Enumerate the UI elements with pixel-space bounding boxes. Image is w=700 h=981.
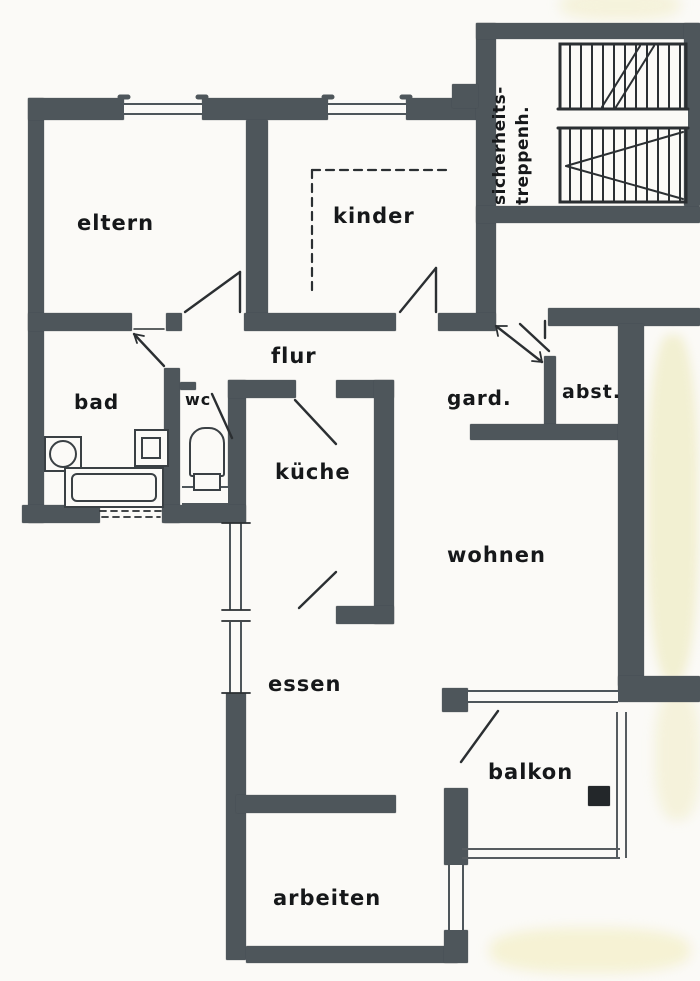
- room-label-kueche: küche: [275, 460, 351, 484]
- room-label-flur: flur: [271, 344, 317, 368]
- room-label-balkon: balkon: [488, 760, 573, 784]
- staircase: [558, 44, 688, 202]
- room-label-arbeiten: arbeiten: [273, 886, 381, 910]
- room-label-wc: wc: [185, 390, 211, 409]
- room-label-essen: essen: [268, 672, 341, 696]
- stairwell-label-line1: sicherheits-: [489, 35, 512, 205]
- door-swing-balcony: [461, 711, 498, 762]
- room-label-eltern: eltern: [77, 211, 154, 235]
- door-swing-kueche-south: [299, 572, 336, 608]
- room-label-abst: abst.: [562, 381, 621, 403]
- window-sill-ticks: [222, 523, 250, 693]
- room-label-stairwell: sicherheits- treppenh.: [489, 35, 547, 205]
- door-swing-bad: [134, 329, 164, 366]
- room-label-kinder: kinder: [333, 204, 415, 228]
- door-swing-eltern: [185, 272, 240, 312]
- room-label-wohnen: wohnen: [447, 543, 546, 567]
- door-swing-entrance: [496, 321, 549, 362]
- door-swing-wc: [212, 394, 232, 438]
- floor-plan: eltern kinder flur bad wc küche gard. ab…: [0, 0, 700, 981]
- stairwell-label-line2: treppenh.: [512, 35, 535, 205]
- door-swing-kueche-north: [295, 400, 336, 444]
- room-label-bad: bad: [74, 390, 119, 414]
- door-swing-kinder: [400, 268, 436, 312]
- room-label-gard: gard.: [447, 386, 512, 410]
- bad-window-dashes: [100, 511, 162, 517]
